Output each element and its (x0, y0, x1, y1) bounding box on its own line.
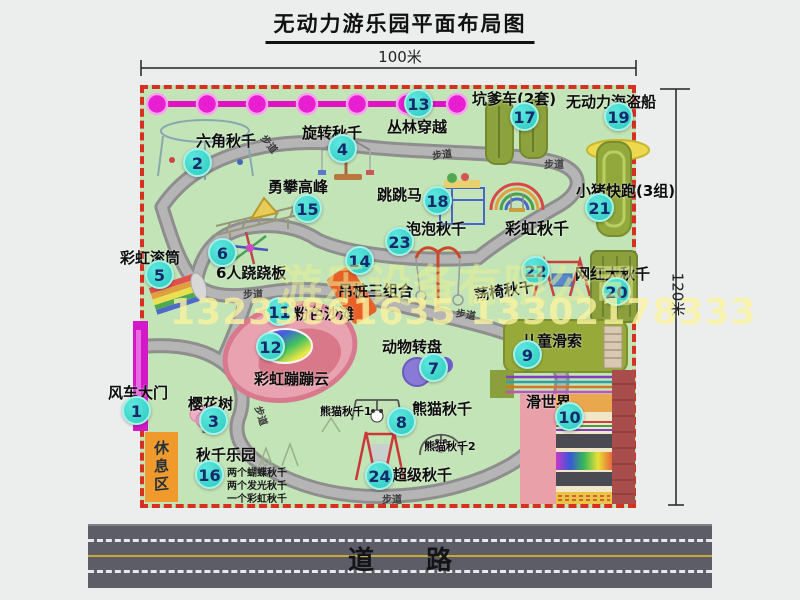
marker-20: 20 (602, 277, 631, 306)
footpath-label-4: 步道 (243, 286, 263, 301)
label-rainbow-swing: 彩虹秋千 (505, 215, 569, 239)
marker-17: 17 (510, 102, 539, 131)
label-pink-beach: 粉色沙滩 (294, 303, 354, 324)
footpath-label-3: 步道 (544, 156, 564, 171)
rest-area-label: 休息区 (151, 439, 172, 495)
marker-3: 3 (199, 406, 228, 435)
marker-12: 12 (256, 332, 285, 361)
marker-19: 19 (604, 102, 633, 131)
marker-4: 4 (328, 134, 357, 163)
footpath-label-2: 步道 (431, 145, 453, 163)
marker-21: 21 (585, 193, 614, 222)
marker-18: 18 (423, 186, 452, 215)
label-panda-swing-2: 熊猫秋千2 (424, 438, 476, 454)
label-super-swing: 超级秋千 (392, 464, 452, 485)
road-label: 道 路 (88, 540, 712, 577)
marker-10: 10 (555, 402, 584, 431)
label-bubble-swing: 泡泡秋千 (406, 218, 466, 239)
marker-1: 1 (122, 396, 151, 425)
marker-9: 9 (513, 340, 542, 369)
height-dimension-label: 120米 (667, 273, 688, 317)
marker-15: 15 (293, 194, 322, 223)
page-title: 无动力游乐园平面布局图 (266, 8, 535, 44)
marker-6: 6 (208, 238, 237, 267)
footpath-label-6: 步道 (382, 491, 402, 506)
marker-2: 2 (183, 148, 212, 177)
footpath-label-5: 步道 (455, 304, 477, 322)
marker-16: 16 (195, 460, 224, 489)
marker-8: 8 (387, 407, 416, 436)
marker-14: 14 (345, 246, 374, 275)
swing-note-3: 一个彩虹秋千 (227, 490, 287, 505)
label-hanging-post-combo: 吊桩三组合 (338, 280, 413, 301)
label-hexagon-swing: 六角秋千 (196, 130, 256, 151)
marker-13: 13 (404, 89, 433, 118)
label-jumping-horse: 跳跳马 (377, 184, 422, 205)
label-panda-swing-1: 熊猫秋千1 (320, 403, 372, 419)
label-rainbow-bounce-cloud: 彩虹蹦蹦云 (254, 368, 329, 389)
rest-area: 休息区 (145, 432, 178, 502)
road: 道 路 (88, 524, 712, 588)
park-layout-plan: 无动力游乐园平面布局图 100米 120米 (0, 0, 800, 600)
width-dimension-label: 100米 (378, 46, 422, 67)
label-jungle-crossing: 丛林穿越 (387, 116, 447, 137)
marker-11: 11 (265, 297, 294, 326)
marker-24: 24 (365, 461, 394, 490)
label-peak-climbing: 勇攀高峰 (268, 176, 328, 197)
marker-5: 5 (145, 260, 174, 289)
marker-7: 7 (419, 353, 448, 382)
marker-22: 22 (521, 256, 550, 285)
marker-23: 23 (385, 227, 414, 256)
label-panda-swing: 熊猫秋千 (412, 398, 472, 419)
